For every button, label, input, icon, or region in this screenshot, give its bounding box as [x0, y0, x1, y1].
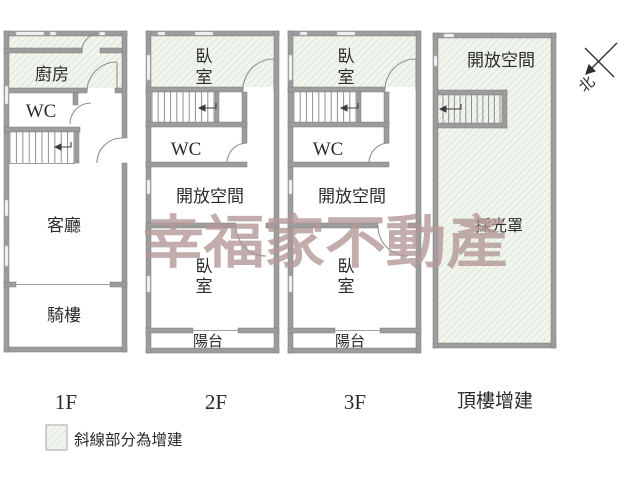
legend: 斜線部分為增建: [46, 425, 183, 450]
window-2f-top: [195, 32, 213, 35]
compass-north-label: 北: [576, 73, 598, 96]
room-label-living-1f: 客廳: [47, 216, 81, 235]
room-label-balcony-3f: 陽台: [335, 333, 365, 350]
watermark-text: 幸福家不動產: [143, 211, 507, 275]
room-label-open-2f: 開放空間: [176, 187, 244, 206]
addition-area-roof: [438, 38, 551, 343]
room-label-kitchen-1f: 廚房: [35, 64, 69, 84]
stairs-2f: [152, 92, 214, 122]
compass-arrow: [586, 43, 617, 74]
room-label-bedroom-top2-3f: 室: [338, 68, 355, 87]
room-label-open-roof: 開放空間: [467, 51, 535, 70]
plan-roof: 開放空間 採光罩: [433, 33, 556, 348]
stairs-arrow-1f: [55, 142, 71, 147]
window-1f-left: [5, 86, 8, 104]
window-3f-left: [289, 55, 292, 80]
plan-1f: 廚房 WC 客廳 騎樓: [4, 31, 127, 352]
room-label-balcony-2f: 陽台: [193, 333, 223, 350]
door-arc-entry-1f: [97, 138, 122, 163]
legend-text: 斜線部分為增建: [74, 431, 183, 449]
caption-3f: 3F: [344, 390, 366, 414]
room-label-bedroom-top1-2f: 臥: [196, 47, 213, 66]
room-label-bedroom2-3f: 室: [338, 277, 355, 296]
floorplan-image: 廚房 WC 客廳 騎樓 臥 室: [0, 0, 640, 480]
addition-area-3f: [293, 36, 416, 87]
window-1f-top: [16, 32, 44, 35]
window-3f-top: [337, 32, 355, 35]
caption-roof: 頂樓增建: [457, 390, 533, 412]
caption-1f: 1F: [55, 390, 77, 414]
door-arc-wc-1f: [70, 103, 91, 124]
room-label-bedroom-top1-3f: 臥: [338, 47, 355, 66]
window-roof-left: [434, 56, 437, 66]
room-label-bedroom-top2-2f: 室: [196, 68, 213, 87]
room-label-arcade-1f: 騎樓: [47, 306, 81, 325]
compass: 北: [576, 43, 617, 96]
legend-swatch: [46, 425, 67, 450]
room-label-wc-2f: WC: [171, 139, 202, 160]
window-2f-left: [147, 55, 150, 80]
compass-cross-line: [585, 48, 614, 77]
room-label-wc-3f: WC: [313, 139, 344, 160]
stairs-3f: [294, 92, 356, 122]
plan-3f: 臥 室 WC 開放空間 臥 室 陽台: [288, 31, 421, 353]
room-label-wc-1f: WC: [26, 101, 57, 122]
addition-area-2f: [151, 36, 274, 87]
plan-2f: 臥 室 WC 開放空間 臥 室 陽台: [146, 31, 279, 353]
caption-2f: 2F: [205, 390, 227, 414]
room-label-bedroom2-2f: 室: [196, 277, 213, 296]
room-label-open-3f: 開放空間: [318, 187, 386, 206]
door-arc-wc-3f: [369, 143, 389, 163]
door-arc-wc-2f: [227, 143, 247, 163]
